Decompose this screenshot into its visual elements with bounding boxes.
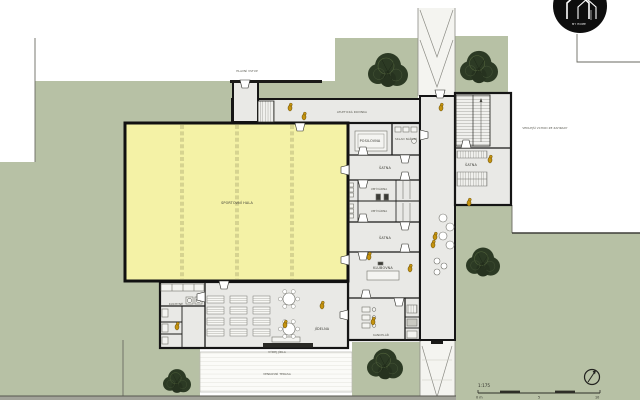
label-sports-hall: SPORTOVNÍ HALA: [221, 200, 253, 205]
floor-plan-drawing: SPORTOVNÍ HALA ŠATNA: [0, 0, 640, 400]
logo-text: MY HOME: [572, 22, 586, 26]
south-rooms-block: [160, 282, 348, 348]
floor-plan-page: SPORTOVNÍ HALA ŠATNA: [0, 0, 640, 400]
scale-ten: 10: [595, 396, 599, 400]
north-walkway-ramp: [418, 8, 455, 96]
label-storage: SKLAD NÁŘADÍ: [395, 136, 417, 141]
scale-zero: 0 m: [476, 396, 483, 400]
label-track: ATLETICKÁ ROVINKA: [337, 109, 367, 114]
logo-stamp: MY HOME: [553, 0, 607, 33]
label-side-entrance: VEDLEJŠÍ VCHOD ZE ZAHRADY: [522, 125, 567, 130]
label-wash-a: UMÝVÁRNA: [371, 186, 388, 191]
scale-five: 5: [538, 396, 540, 400]
label-dining: JÍDELNA: [314, 326, 330, 331]
scale-ratio: 1:175: [478, 383, 490, 388]
label-locker-b: ŠATNA: [379, 235, 391, 240]
label-fitness: POSILOVNA: [360, 139, 381, 143]
label-wash-b: UMÝVÁRNA: [371, 208, 388, 213]
label-club: KLUBOVNA: [373, 266, 393, 270]
label-locker-a: ŠATNA: [379, 165, 391, 170]
east-staircase: [456, 95, 490, 146]
label-office: KANCELÁŘ: [373, 332, 389, 337]
label-kitchen: KUCHYNĚ: [169, 301, 183, 306]
north-entry-stairs: [258, 101, 274, 122]
south-walkway-ramp: [420, 340, 455, 400]
label-serving: VÝDEJ JÍDLA: [268, 349, 286, 354]
sidewalk: [0, 396, 456, 400]
label-main-entrance: HLAVNÍ VSTUP: [236, 68, 258, 73]
sports-hall: SPORTOVNÍ HALA: [125, 123, 348, 281]
lawn-east: [455, 205, 640, 400]
terrace: VENKOVNÍ TERASA: [200, 352, 352, 392]
label-terrace: VENKOVNÍ TERASA: [263, 371, 291, 376]
label-bike-room: ŠATNA: [465, 162, 477, 167]
